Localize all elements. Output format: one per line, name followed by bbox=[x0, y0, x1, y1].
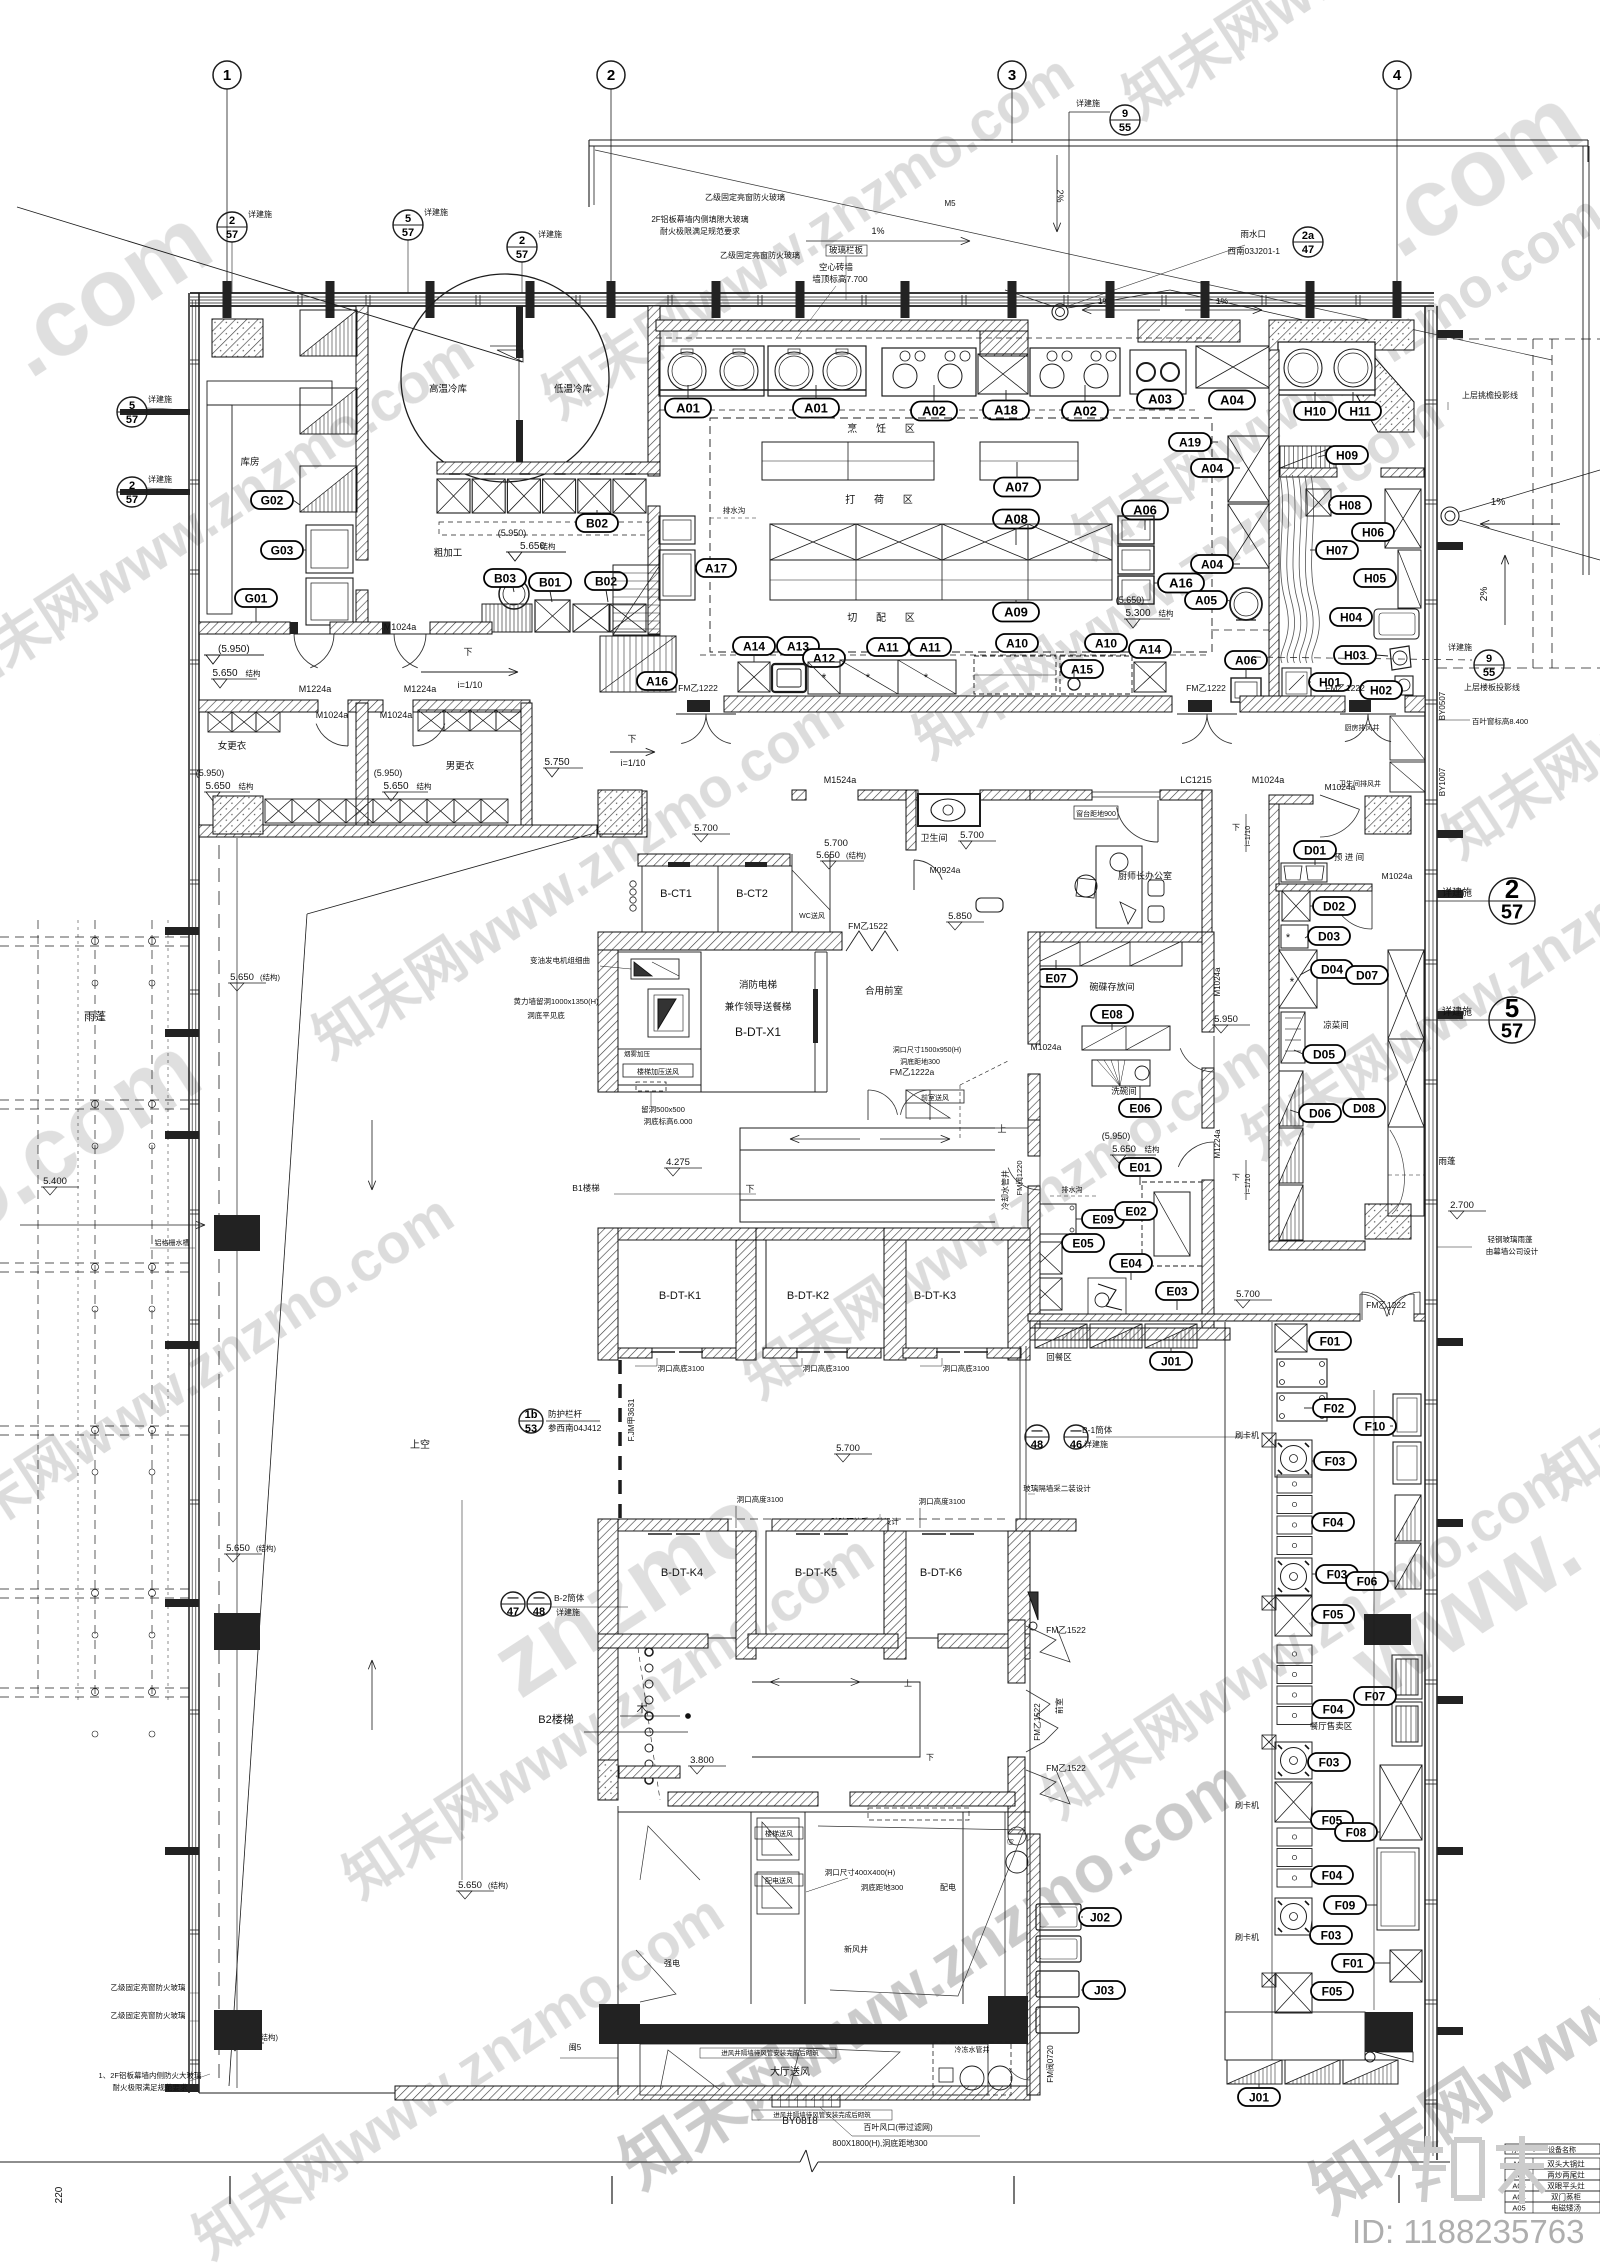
svg-text:E06: E06 bbox=[1129, 1102, 1151, 1116]
svg-text:B1楼梯: B1楼梯 bbox=[572, 1183, 600, 1193]
svg-text:高温冷库: 高温冷库 bbox=[429, 383, 468, 395]
svg-text:57: 57 bbox=[1501, 901, 1523, 923]
svg-text:H04: H04 bbox=[1340, 611, 1362, 625]
svg-text:4: 4 bbox=[1393, 67, 1402, 84]
svg-text:木: 木 bbox=[637, 1702, 648, 1715]
svg-text:M1024a: M1024a bbox=[1325, 782, 1356, 792]
svg-text:前室送风: 前室送风 bbox=[921, 1093, 949, 1102]
svg-text:B02: B02 bbox=[586, 517, 608, 531]
svg-text:刷卡机: 刷卡机 bbox=[1235, 1932, 1259, 1942]
svg-text:合用前室: 合用前室 bbox=[865, 985, 903, 997]
svg-text:57: 57 bbox=[516, 249, 528, 261]
svg-text:B-DT-K4: B-DT-K4 bbox=[661, 1567, 703, 1579]
svg-text:详建施: 详建施 bbox=[1084, 1439, 1108, 1449]
svg-text:乙级固定亮窗防火玻璃: 乙级固定亮窗防火玻璃 bbox=[111, 1982, 186, 1992]
svg-text:洞底距地300: 洞底距地300 bbox=[900, 1057, 940, 1066]
svg-text:FM乙1522: FM乙1522 bbox=[848, 921, 888, 931]
svg-text:百叶风口(带过滤网): 百叶风口(带过滤网) bbox=[863, 2122, 933, 2132]
svg-text:5.400: 5.400 bbox=[43, 1176, 67, 1187]
svg-text:B-DT-K3: B-DT-K3 bbox=[914, 1290, 956, 1302]
svg-text:B02: B02 bbox=[595, 575, 617, 589]
svg-text:洞底标高6.000: 洞底标高6.000 bbox=[644, 1116, 693, 1126]
svg-text:(5.950): (5.950) bbox=[498, 528, 527, 538]
svg-text:双眼平头灶: 双眼平头灶 bbox=[1547, 2181, 1585, 2191]
svg-text:男更衣: 男更衣 bbox=[446, 760, 475, 772]
svg-text:2: 2 bbox=[129, 480, 135, 492]
svg-text:F05: F05 bbox=[1323, 1608, 1344, 1622]
svg-text:黄力墙留洞1000x1350(H): 黄力墙留洞1000x1350(H) bbox=[513, 996, 599, 1006]
svg-text:A03: A03 bbox=[1148, 392, 1172, 407]
svg-text:H10: H10 bbox=[1304, 405, 1326, 419]
svg-text:A11: A11 bbox=[919, 641, 941, 655]
svg-text:下: 下 bbox=[745, 1184, 754, 1194]
svg-text:1b: 1b bbox=[525, 1409, 538, 1421]
svg-text:J01: J01 bbox=[1249, 2091, 1269, 2105]
svg-text:耐火极限满足规范要求: 耐火极限满足规范要求 bbox=[660, 226, 740, 236]
svg-text:洗碗间: 洗碗间 bbox=[1111, 1086, 1137, 1096]
svg-text:洞口高底3100: 洞口高底3100 bbox=[943, 1363, 990, 1373]
svg-text:A02: A02 bbox=[1073, 404, 1097, 419]
svg-text:D04: D04 bbox=[1321, 963, 1343, 977]
svg-text:烟雾加压: 烟雾加压 bbox=[624, 1049, 651, 1058]
svg-text:A04: A04 bbox=[1201, 462, 1223, 476]
svg-text:5: 5 bbox=[129, 400, 135, 412]
svg-text:玻璃隔墙采二装设计: 玻璃隔墙采二装设计 bbox=[1023, 1483, 1091, 1493]
svg-text:1%: 1% bbox=[871, 226, 884, 236]
svg-text:兼作领导送餐梯: 兼作领导送餐梯 bbox=[725, 1001, 792, 1013]
svg-text:55: 55 bbox=[1483, 667, 1495, 679]
svg-text:F10: F10 bbox=[1365, 1420, 1386, 1434]
svg-text:A01: A01 bbox=[676, 401, 700, 416]
svg-text:A06: A06 bbox=[1235, 654, 1257, 668]
svg-text:57: 57 bbox=[226, 229, 238, 241]
svg-text:1%: 1% bbox=[1216, 296, 1229, 306]
svg-text:M1224a: M1224a bbox=[299, 684, 332, 694]
svg-text:A14: A14 bbox=[743, 640, 765, 654]
svg-text:女更衣: 女更衣 bbox=[218, 740, 247, 752]
svg-text:留洞500x500: 留洞500x500 bbox=[641, 1104, 685, 1114]
svg-text:*: * bbox=[1286, 932, 1291, 944]
svg-text:F02: F02 bbox=[1324, 1402, 1345, 1416]
svg-text:F03: F03 bbox=[1319, 1756, 1340, 1770]
svg-text:结构: 结构 bbox=[1159, 608, 1175, 618]
svg-text:F01: F01 bbox=[1320, 1335, 1341, 1349]
svg-text:下: 下 bbox=[1232, 1173, 1240, 1182]
svg-text:5.850: 5.850 bbox=[948, 911, 972, 922]
svg-text:电磁矮汤: 电磁矮汤 bbox=[1551, 2203, 1581, 2213]
svg-text:FM乙1522: FM乙1522 bbox=[1046, 1625, 1086, 1635]
svg-text:M1224a: M1224a bbox=[404, 684, 437, 694]
svg-text:B01: B01 bbox=[539, 576, 561, 590]
svg-text:详建施: 详建施 bbox=[1076, 98, 1100, 108]
svg-text:详建施: 详建施 bbox=[538, 229, 562, 239]
svg-text:(5.950): (5.950) bbox=[196, 768, 225, 778]
svg-text:M1024a: M1024a bbox=[384, 622, 417, 632]
svg-text:B-CT1: B-CT1 bbox=[660, 888, 692, 900]
svg-text:D08: D08 bbox=[1353, 1102, 1375, 1116]
svg-text:E08: E08 bbox=[1101, 1008, 1123, 1022]
svg-text:详建施: 详建施 bbox=[424, 207, 448, 217]
svg-text:A04: A04 bbox=[1220, 393, 1245, 408]
svg-text:*: * bbox=[822, 671, 827, 685]
svg-text:5.700: 5.700 bbox=[694, 823, 718, 834]
svg-text:结构: 结构 bbox=[541, 541, 556, 551]
svg-text:5.650: 5.650 bbox=[205, 781, 230, 792]
svg-text:47: 47 bbox=[1302, 244, 1314, 256]
svg-text:D06: D06 bbox=[1309, 1107, 1331, 1121]
svg-text:48: 48 bbox=[533, 1606, 545, 1618]
svg-text:洞口高底3100: 洞口高底3100 bbox=[803, 1363, 850, 1373]
svg-text:回餐区: 回餐区 bbox=[1046, 1352, 1072, 1362]
svg-text:结构: 结构 bbox=[1145, 1144, 1161, 1154]
svg-text:2%: 2% bbox=[1055, 189, 1065, 202]
svg-text:A16: A16 bbox=[646, 675, 668, 689]
svg-text:粗加工: 粗加工 bbox=[434, 547, 463, 559]
svg-text:雨蓬: 雨蓬 bbox=[84, 1010, 106, 1023]
svg-text:切 配 区: 切 配 区 bbox=[847, 612, 923, 624]
svg-text:洞口高底3100: 洞口高底3100 bbox=[658, 1363, 705, 1373]
svg-text:5.650: 5.650 bbox=[230, 972, 254, 983]
svg-text:M1024a: M1024a bbox=[1252, 775, 1285, 785]
svg-text:LC1215: LC1215 bbox=[1180, 775, 1212, 785]
svg-text:墙顶标高7.700: 墙顶标高7.700 bbox=[812, 274, 868, 284]
svg-text:两炒两尾灶: 两炒两尾灶 bbox=[1547, 2170, 1585, 2180]
svg-text:F01: F01 bbox=[1343, 1957, 1364, 1971]
svg-text:F07: F07 bbox=[1365, 1690, 1386, 1704]
svg-text:F03: F03 bbox=[1325, 1455, 1346, 1469]
svg-text:5.700: 5.700 bbox=[836, 1443, 860, 1454]
svg-text:F09: F09 bbox=[1335, 1899, 1356, 1913]
svg-text:55: 55 bbox=[1119, 122, 1131, 134]
svg-text:前室: 前室 bbox=[1054, 1698, 1064, 1714]
svg-text:B-DT-K5: B-DT-K5 bbox=[795, 1567, 837, 1579]
svg-text:—: — bbox=[1032, 1425, 1043, 1437]
svg-text:FM乙1222: FM乙1222 bbox=[1325, 683, 1365, 693]
svg-text:乙级固定亮窗防火玻璃: 乙级固定亮窗防火玻璃 bbox=[705, 192, 785, 202]
svg-text:(5.950): (5.950) bbox=[1102, 1131, 1131, 1141]
svg-text:—: — bbox=[508, 1592, 519, 1604]
svg-text:详建施: 详建施 bbox=[148, 474, 172, 484]
svg-text:F08: F08 bbox=[1346, 1826, 1367, 1840]
svg-text:5.700: 5.700 bbox=[1236, 1289, 1260, 1300]
svg-text:窗台距地900: 窗台距地900 bbox=[1076, 809, 1116, 818]
svg-text:D02: D02 bbox=[1323, 900, 1345, 914]
svg-text:J01: J01 bbox=[1161, 1355, 1181, 1369]
svg-text:上: 上 bbox=[904, 1679, 912, 1688]
svg-text:A16: A16 bbox=[1169, 576, 1193, 591]
svg-text:结构: 结构 bbox=[417, 781, 432, 791]
svg-text:M5: M5 bbox=[944, 199, 956, 208]
svg-text:变油发电机组细曲: 变油发电机组细曲 bbox=[530, 955, 590, 965]
svg-text:H03: H03 bbox=[1344, 649, 1366, 663]
svg-text:进风井隔墙待风管安装完成后砌筑: 进风井隔墙待风管安装完成后砌筑 bbox=[773, 2110, 871, 2119]
svg-text:E05: E05 bbox=[1072, 1237, 1094, 1251]
svg-text:9: 9 bbox=[1122, 108, 1128, 120]
svg-text:G02: G02 bbox=[261, 494, 284, 508]
svg-text:(结构): (结构) bbox=[260, 972, 280, 982]
svg-text:参西南04J412: 参西南04J412 bbox=[548, 1423, 602, 1433]
svg-text:H07: H07 bbox=[1326, 544, 1348, 558]
svg-text:3.800: 3.800 bbox=[690, 1755, 714, 1766]
svg-text:A10: A10 bbox=[1095, 637, 1117, 651]
svg-text:H11: H11 bbox=[1349, 405, 1371, 419]
svg-text:—: — bbox=[534, 1592, 545, 1604]
svg-text:A14: A14 bbox=[1139, 643, 1161, 657]
svg-text:1%: 1% bbox=[1491, 497, 1506, 508]
svg-text:强电: 强电 bbox=[664, 1958, 680, 1968]
svg-text:预 进 间: 预 进 间 bbox=[1334, 852, 1364, 862]
svg-text:FM阀1220: FM阀1220 bbox=[1015, 1160, 1024, 1195]
svg-text:FM乙1522: FM乙1522 bbox=[1046, 1763, 1086, 1773]
svg-text:上层楼板投影线: 上层楼板投影线 bbox=[1464, 682, 1520, 692]
svg-text:下: 下 bbox=[627, 734, 636, 744]
svg-text:5.950: 5.950 bbox=[1214, 1014, 1238, 1025]
svg-text:详建施: 详建施 bbox=[248, 209, 272, 219]
svg-text:配电送风: 配电送风 bbox=[765, 1876, 793, 1885]
svg-text:2%: 2% bbox=[1479, 587, 1490, 602]
svg-text:57: 57 bbox=[1501, 1020, 1523, 1042]
svg-text:烹 饪 区: 烹 饪 区 bbox=[847, 422, 923, 435]
svg-text:*: * bbox=[1290, 975, 1295, 989]
svg-text:2F铝板幕墙内侧填隙大玻璃: 2F铝板幕墙内侧填隙大玻璃 bbox=[651, 214, 748, 224]
svg-text:厨房排风井: 厨房排风井 bbox=[1345, 723, 1380, 732]
svg-text:D03: D03 bbox=[1318, 930, 1340, 944]
svg-text:A17: A17 bbox=[705, 562, 727, 576]
svg-text:(结构): (结构) bbox=[846, 850, 866, 860]
svg-text:H09: H09 bbox=[1336, 449, 1358, 463]
svg-text:57: 57 bbox=[402, 227, 414, 239]
svg-text:WC送风: WC送风 bbox=[799, 911, 825, 920]
svg-text:上: 上 bbox=[997, 1124, 1006, 1134]
svg-text:(5.950): (5.950) bbox=[374, 768, 403, 778]
svg-text:空心砖墙: 空心砖墙 bbox=[819, 262, 854, 272]
svg-text:i=1/10: i=1/10 bbox=[621, 758, 646, 768]
svg-text:B-1筒体: B-1筒体 bbox=[1082, 1425, 1113, 1435]
svg-text:洞底距地300: 洞底距地300 bbox=[861, 1882, 904, 1892]
svg-text:B2楼梯: B2楼梯 bbox=[538, 1712, 573, 1726]
svg-text:J03: J03 bbox=[1094, 1984, 1114, 1998]
svg-text:闷: 闷 bbox=[1007, 1839, 1015, 1845]
svg-text:i=1/10: i=1/10 bbox=[1243, 1174, 1252, 1195]
svg-text:5.650: 5.650 bbox=[816, 850, 840, 861]
svg-text:A18: A18 bbox=[994, 403, 1018, 418]
svg-text:洞口高度3100: 洞口高度3100 bbox=[919, 1496, 966, 1506]
svg-text:结构: 结构 bbox=[246, 668, 261, 678]
svg-text:FM乙1222: FM乙1222 bbox=[1186, 683, 1226, 693]
svg-text:洞口尺寸1500x950(H): 洞口尺寸1500x950(H) bbox=[893, 1045, 961, 1054]
svg-text:配电: 配电 bbox=[940, 1882, 956, 1892]
svg-text:B-DT-K2: B-DT-K2 bbox=[787, 1290, 829, 1302]
svg-text:ID: 1188235763: ID: 1188235763 bbox=[1352, 2213, 1584, 2250]
svg-text:2.700: 2.700 bbox=[1450, 1200, 1474, 1211]
svg-text:F.JM甲3631: F.JM甲3631 bbox=[627, 1398, 636, 1441]
svg-text:5.650: 5.650 bbox=[383, 781, 408, 792]
svg-text:5.750: 5.750 bbox=[544, 757, 569, 768]
svg-text:220: 220 bbox=[54, 2186, 65, 2203]
svg-text:新风井: 新风井 bbox=[844, 1944, 868, 1954]
svg-text:B-CT2: B-CT2 bbox=[736, 888, 768, 900]
svg-text:百叶窗标高8.400: 百叶窗标高8.400 bbox=[1472, 716, 1528, 726]
svg-text:F04: F04 bbox=[1322, 1869, 1343, 1883]
svg-text:E03: E03 bbox=[1166, 1285, 1188, 1299]
svg-text:F06: F06 bbox=[1357, 1575, 1378, 1589]
svg-text:A01: A01 bbox=[804, 401, 828, 416]
svg-text:H08: H08 bbox=[1339, 499, 1361, 513]
svg-text:5.300: 5.300 bbox=[1125, 608, 1150, 619]
svg-text:A19: A19 bbox=[1179, 436, 1201, 450]
svg-text:M1024a: M1024a bbox=[316, 710, 349, 720]
svg-text:洞口尺寸400X400(H): 洞口尺寸400X400(H) bbox=[825, 1867, 896, 1877]
svg-text:G01: G01 bbox=[245, 592, 268, 606]
svg-text:G03: G03 bbox=[271, 544, 294, 558]
svg-text:F03: F03 bbox=[1321, 1929, 1342, 1943]
svg-text:5: 5 bbox=[1505, 993, 1519, 1023]
svg-text:F04: F04 bbox=[1323, 1516, 1344, 1530]
svg-text:乙级固定亮窗防火玻璃: 乙级固定亮窗防火玻璃 bbox=[720, 250, 800, 260]
svg-text:B-DT-K1: B-DT-K1 bbox=[659, 1290, 701, 1302]
svg-text:玻璃栏板: 玻璃栏板 bbox=[829, 245, 864, 255]
svg-text:800X1800(H),洞底距地300: 800X1800(H),洞底距地300 bbox=[832, 2138, 928, 2148]
svg-text:餐厅售卖区: 餐厅售卖区 bbox=[1310, 1721, 1353, 1731]
svg-text:*: * bbox=[866, 672, 871, 684]
svg-text:48: 48 bbox=[1031, 1439, 1043, 1451]
svg-text:E02: E02 bbox=[1125, 1205, 1147, 1219]
svg-text:A04: A04 bbox=[1201, 558, 1223, 572]
svg-text:1、2F铝板幕墙内侧防火大玻璃: 1、2F铝板幕墙内侧防火大玻璃 bbox=[99, 2070, 202, 2080]
svg-text:B-2筒体: B-2筒体 bbox=[554, 1593, 585, 1603]
svg-text:M1024a: M1024a bbox=[1382, 871, 1413, 881]
svg-text:设备名称: 设备名称 bbox=[1548, 2145, 1576, 2154]
svg-text:轻钢玻璃雨蓬: 轻钢玻璃雨蓬 bbox=[1488, 1234, 1533, 1244]
svg-text:i=1/10: i=1/10 bbox=[1243, 826, 1252, 847]
svg-text:M1024a: M1024a bbox=[1213, 967, 1222, 996]
svg-text:上空: 上空 bbox=[410, 1438, 430, 1451]
svg-text:5.650: 5.650 bbox=[1112, 1144, 1136, 1155]
svg-text:5: 5 bbox=[405, 213, 411, 225]
svg-text:双门蒸柜: 双门蒸柜 bbox=[1551, 2192, 1581, 2202]
svg-text:57: 57 bbox=[126, 414, 138, 426]
svg-text:耐火极限满足规范要求: 耐火极限满足规范要求 bbox=[113, 2082, 188, 2092]
svg-text:FM乙1522: FM乙1522 bbox=[1033, 1703, 1042, 1741]
svg-text:2: 2 bbox=[519, 235, 525, 247]
svg-text:9: 9 bbox=[1486, 653, 1492, 665]
svg-text:E04: E04 bbox=[1120, 1257, 1142, 1271]
svg-text:洞口高度3100: 洞口高度3100 bbox=[737, 1494, 784, 1504]
svg-text:卫生间: 卫生间 bbox=[920, 832, 947, 843]
svg-text:库房: 库房 bbox=[240, 456, 259, 468]
svg-text:E01: E01 bbox=[1129, 1161, 1151, 1175]
svg-text:(5.950): (5.950) bbox=[218, 644, 250, 655]
svg-text:D07: D07 bbox=[1356, 969, 1378, 983]
svg-text:下: 下 bbox=[926, 1753, 934, 1762]
svg-text:F05: F05 bbox=[1322, 1985, 1343, 1999]
svg-text:雨水口: 雨水口 bbox=[1240, 229, 1266, 239]
svg-text:打 荷 区: 打 荷 区 bbox=[845, 493, 921, 506]
svg-text:D01: D01 bbox=[1304, 844, 1326, 858]
svg-text:1: 1 bbox=[223, 67, 231, 84]
svg-text:A05: A05 bbox=[1195, 594, 1217, 608]
svg-text:M1224a: M1224a bbox=[1213, 1129, 1222, 1158]
svg-text:D05: D05 bbox=[1313, 1048, 1335, 1062]
svg-text:57: 57 bbox=[126, 494, 138, 506]
svg-text:F03: F03 bbox=[1327, 1568, 1348, 1582]
svg-text:M1024a: M1024a bbox=[380, 710, 413, 720]
svg-text:5.650: 5.650 bbox=[212, 668, 237, 679]
svg-text:E07: E07 bbox=[1045, 972, 1067, 986]
svg-text:楼梯加压送风: 楼梯加压送风 bbox=[637, 1067, 679, 1076]
svg-text:A07: A07 bbox=[1005, 480, 1029, 495]
svg-text:2: 2 bbox=[607, 67, 615, 84]
svg-text:F04: F04 bbox=[1323, 1703, 1344, 1717]
svg-text:i=1/10: i=1/10 bbox=[458, 680, 483, 690]
svg-text:楼梯送风: 楼梯送风 bbox=[765, 1829, 793, 1838]
svg-text:B03: B03 bbox=[494, 572, 516, 586]
svg-text:5.700: 5.700 bbox=[824, 838, 848, 849]
svg-text:A12: A12 bbox=[813, 652, 835, 666]
svg-text:2a: 2a bbox=[1302, 230, 1315, 242]
svg-text:排水沟: 排水沟 bbox=[723, 505, 746, 515]
svg-text:详建施: 详建施 bbox=[1442, 886, 1472, 899]
svg-text:铝格栅水槽: 铝格栅水槽 bbox=[155, 1238, 190, 1247]
svg-text:冷冻水管井: 冷冻水管井 bbox=[955, 2045, 990, 2054]
svg-text:2: 2 bbox=[229, 215, 235, 227]
svg-text:A06: A06 bbox=[1133, 503, 1157, 518]
svg-text:洞底平见底: 洞底平见底 bbox=[527, 1010, 565, 1020]
svg-text:(结构): (结构) bbox=[256, 1543, 276, 1553]
svg-text:46: 46 bbox=[1070, 1439, 1082, 1451]
svg-text:双头大锅灶: 双头大锅灶 bbox=[1547, 2159, 1585, 2169]
svg-text:A11: A11 bbox=[877, 641, 899, 655]
svg-text:FM阀0720: FM阀0720 bbox=[1046, 2045, 1055, 2083]
svg-text:上层挑檐投影线: 上层挑檐投影线 bbox=[1462, 390, 1518, 400]
svg-text:FM乙1222: FM乙1222 bbox=[678, 683, 718, 693]
svg-text:碗碟存放间: 碗碟存放间 bbox=[1089, 981, 1134, 992]
svg-text:H06: H06 bbox=[1362, 526, 1384, 540]
svg-text:刷卡机: 刷卡机 bbox=[1235, 1430, 1259, 1440]
svg-text:5.700: 5.700 bbox=[960, 830, 984, 841]
svg-text:53: 53 bbox=[525, 1423, 537, 1435]
svg-text:M0924a: M0924a bbox=[930, 865, 961, 875]
svg-text:消防电梯: 消防电梯 bbox=[739, 979, 778, 991]
svg-text:E09: E09 bbox=[1092, 1213, 1114, 1227]
svg-text:FM乙1222a: FM乙1222a bbox=[890, 1067, 935, 1077]
svg-text:B-DT-X1: B-DT-X1 bbox=[735, 1025, 781, 1039]
svg-text:(5.650): (5.650) bbox=[1116, 595, 1145, 605]
svg-text:进风井隔墙待风管安装完成后砌筑: 进风井隔墙待风管安装完成后砌筑 bbox=[721, 2048, 819, 2057]
svg-text:A05: A05 bbox=[1512, 2204, 1525, 2213]
svg-text:详建施: 详建施 bbox=[1442, 1005, 1472, 1018]
svg-text:冷却水管井: 冷却水管井 bbox=[1000, 1170, 1010, 1210]
svg-text:*: * bbox=[924, 672, 929, 684]
svg-text:详建施: 详建施 bbox=[556, 1607, 580, 1617]
svg-text:—: — bbox=[1071, 1425, 1082, 1437]
svg-text:西南03J201-1: 西南03J201-1 bbox=[1228, 246, 1281, 256]
svg-text:由幕墙公司设计: 由幕墙公司设计 bbox=[1486, 1246, 1539, 1256]
svg-text:A02: A02 bbox=[922, 404, 946, 419]
svg-text:A09: A09 bbox=[1004, 605, 1028, 620]
svg-text:3: 3 bbox=[1008, 67, 1016, 84]
svg-text:H05: H05 bbox=[1364, 572, 1386, 586]
svg-text:BY1007: BY1007 bbox=[1438, 767, 1447, 796]
svg-text:下: 下 bbox=[1232, 823, 1240, 832]
svg-text:5.650: 5.650 bbox=[458, 1880, 482, 1891]
svg-text:H02: H02 bbox=[1370, 684, 1392, 698]
svg-text:刷卡机: 刷卡机 bbox=[1235, 1800, 1259, 1810]
svg-text:A10: A10 bbox=[1006, 637, 1028, 651]
svg-text:结构: 结构 bbox=[239, 781, 254, 791]
svg-text:(结构): (结构) bbox=[488, 1880, 508, 1890]
svg-text:5.650: 5.650 bbox=[226, 1543, 250, 1554]
